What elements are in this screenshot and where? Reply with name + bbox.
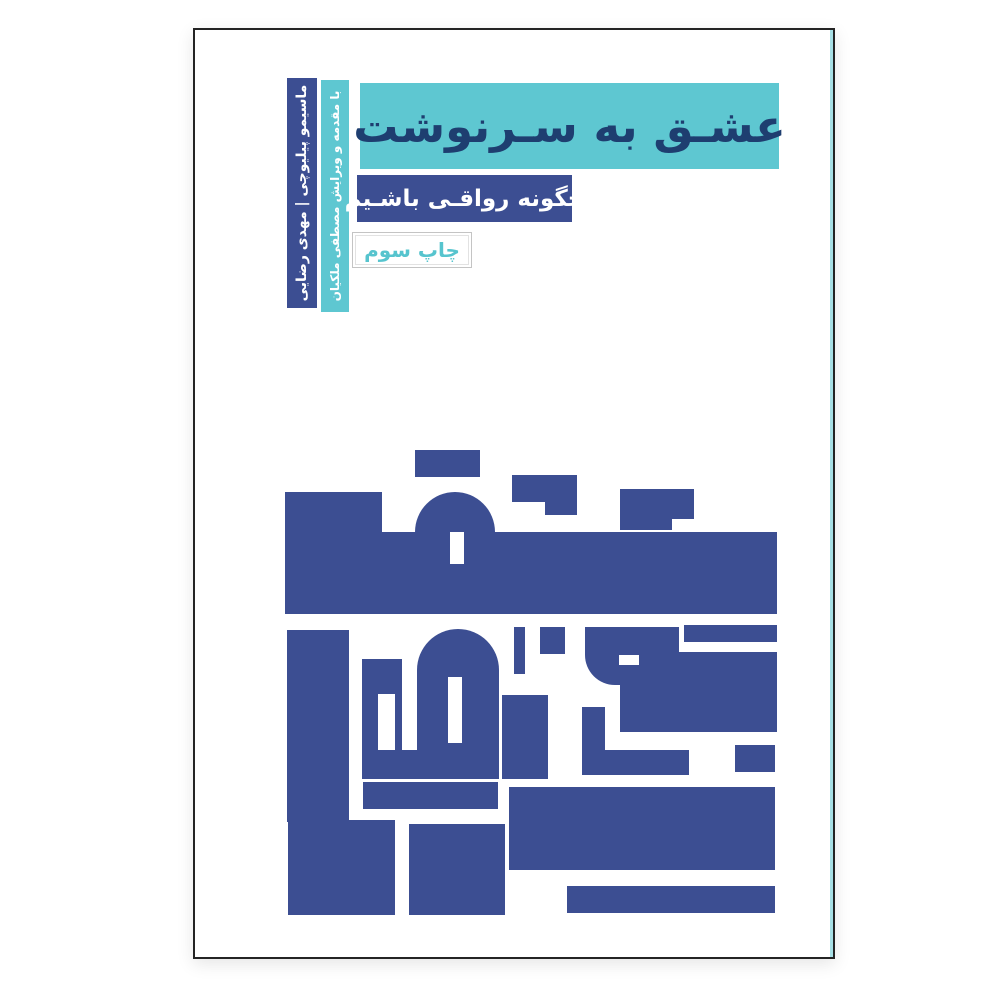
artwork-shape	[512, 475, 577, 502]
product-photo: { "colors": { "ink": "#3c4e92", "teal": …	[0, 0, 1000, 1000]
title-banner: عشـق به سـرنوشت	[360, 83, 779, 169]
artwork-shape	[620, 519, 672, 530]
book-cover: ماسیمو پیلیوچی | مهدی رضایی با مقدمه و و…	[193, 28, 835, 959]
artwork-shape	[502, 695, 548, 779]
artwork-shape	[287, 630, 349, 822]
book-subtitle: چگونه رواقـی باشـیم	[345, 186, 585, 212]
artwork-shape	[288, 820, 395, 915]
artwork-shape	[363, 782, 498, 809]
artwork-shape	[362, 750, 499, 779]
artwork-counter-shape	[378, 694, 395, 759]
artwork-shape	[509, 787, 775, 870]
artwork-shape	[582, 707, 605, 755]
edition-badge: چاپ سوم	[352, 232, 472, 268]
artwork-shape	[415, 450, 480, 477]
artwork-shape	[285, 492, 382, 534]
book-title: عشـق به سـرنوشت	[353, 100, 786, 153]
artwork-shape	[545, 502, 577, 515]
artwork-counter-shape	[448, 677, 462, 743]
artwork-counter-shape	[450, 532, 464, 564]
artwork-shape	[409, 824, 505, 915]
page-edge-highlight	[830, 30, 833, 957]
artwork-shape	[684, 625, 777, 642]
edition-label: چاپ سوم	[364, 238, 460, 262]
artwork-shape	[540, 627, 565, 654]
spine-strip-authors: ماسیمو پیلیوچی | مهدی رضایی	[287, 78, 317, 308]
artwork-shape	[567, 886, 775, 913]
authors-vertical-text: ماسیمو پیلیوچی | مهدی رضایی	[287, 78, 317, 308]
artwork-shape	[285, 532, 777, 614]
artwork-shape	[735, 745, 775, 772]
artwork-shape	[514, 627, 525, 674]
artwork-counter-shape	[619, 655, 639, 665]
artwork-shape	[620, 489, 694, 519]
kufic-calligraphy-artwork	[285, 450, 777, 915]
subtitle-bar: چگونه رواقـی باشـیم	[357, 175, 572, 222]
artwork-shape	[582, 750, 689, 775]
